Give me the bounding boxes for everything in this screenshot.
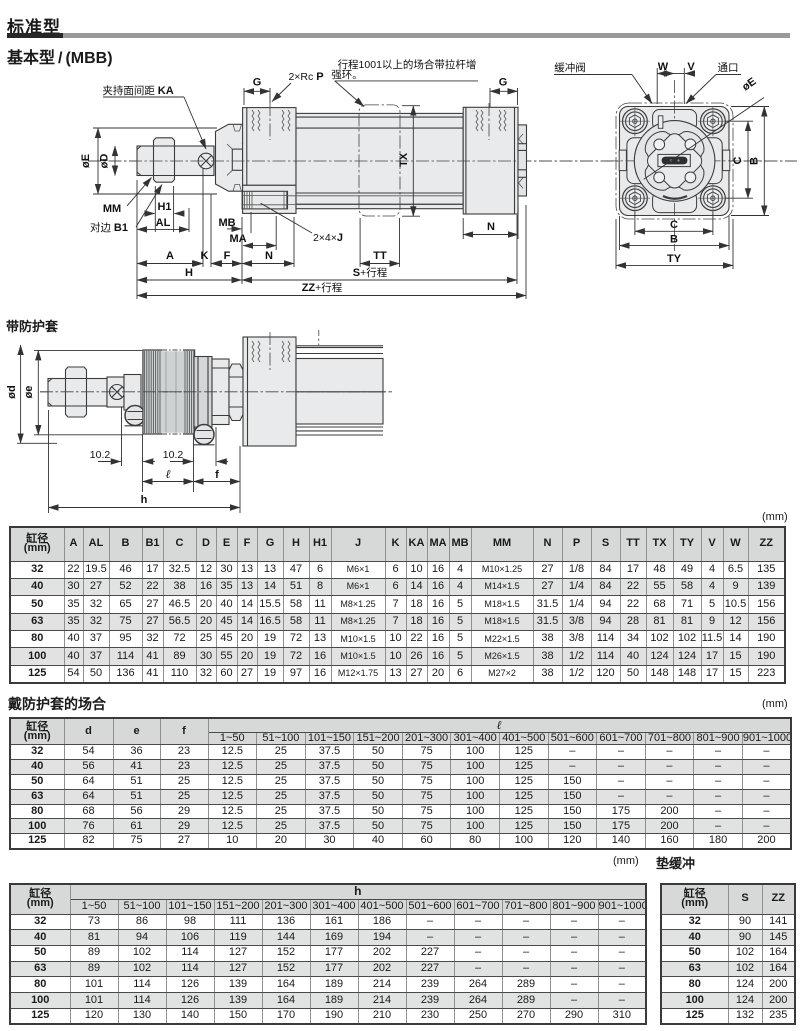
svg-text:MB: MB: [218, 217, 235, 229]
svg-text:H: H: [185, 267, 193, 279]
svg-text:ød: ød: [6, 385, 18, 398]
svg-text:øE: øE: [80, 154, 92, 168]
svg-text:通口: 通口: [718, 62, 739, 74]
svg-text:øD: øD: [99, 154, 111, 169]
svg-text:øe: øe: [23, 386, 35, 399]
svg-text:对边 B1: 对边 B1: [90, 221, 128, 234]
svg-text:C: C: [670, 219, 678, 231]
svg-text:TT: TT: [373, 250, 387, 262]
svg-text:ZZ+行程: ZZ+行程: [302, 281, 343, 294]
svg-text:A: A: [166, 250, 174, 262]
svg-text:V: V: [687, 61, 695, 73]
svg-text:缓冲阀: 缓冲阀: [554, 61, 586, 74]
svg-text:N: N: [487, 221, 495, 233]
svg-text:S+行程: S+行程: [353, 266, 388, 279]
svg-text:10.2: 10.2: [163, 449, 184, 461]
svg-text:强环。: 强环。: [331, 69, 363, 81]
svg-text:B: B: [670, 234, 678, 246]
svg-text:h: h: [141, 494, 148, 506]
svg-text:10.2: 10.2: [90, 449, 111, 461]
svg-text:TY: TY: [667, 253, 682, 265]
svg-text:MM: MM: [103, 203, 121, 215]
svg-text:B: B: [749, 157, 761, 165]
svg-text:f: f: [215, 469, 219, 481]
svg-text:2×4×J: 2×4×J: [313, 232, 343, 244]
svg-text:G: G: [499, 77, 508, 89]
svg-text:N: N: [265, 250, 273, 262]
svg-text:MA: MA: [229, 233, 246, 245]
svg-text:C: C: [732, 156, 744, 164]
svg-text:TX: TX: [398, 152, 410, 167]
svg-text:W: W: [658, 61, 669, 73]
svg-text:夹持面间距 KA: 夹持面间距 KA: [102, 84, 173, 97]
svg-text:AL: AL: [156, 217, 171, 229]
svg-text:G: G: [253, 77, 262, 89]
svg-text:øE: øE: [740, 76, 758, 94]
svg-text:ℓ: ℓ: [166, 467, 171, 481]
svg-text:F: F: [224, 250, 231, 262]
svg-text:H1: H1: [157, 201, 171, 213]
svg-text:K: K: [201, 250, 209, 262]
svg-text:2×Rc P: 2×Rc P: [288, 71, 323, 83]
